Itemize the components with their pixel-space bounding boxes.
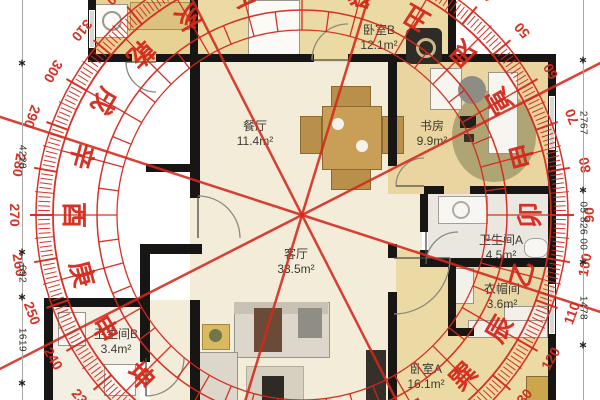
svg-text:250: 250	[21, 299, 44, 327]
wall-segment	[88, 54, 132, 62]
dimension-marker: ∗	[578, 339, 587, 352]
room-name: 餐厅	[237, 119, 273, 134]
wall-segment	[190, 0, 198, 62]
wall-segment	[424, 186, 444, 194]
room-name: 卫生间B	[94, 327, 138, 342]
dimension-marker: ∗	[578, 256, 587, 269]
toilet	[524, 238, 548, 258]
room-label-bedroom-a: 卧室A 16.1m²	[407, 362, 444, 392]
hall-floor	[150, 300, 190, 400]
wall-segment	[388, 292, 397, 400]
dimension-marker: ∗	[17, 57, 26, 70]
svg-text:290: 290	[21, 103, 44, 131]
kitchen-counter	[130, 2, 190, 30]
room-area: 16.1m²	[407, 377, 444, 392]
svg-text:庚: 庚	[64, 258, 100, 291]
dining-chair	[331, 168, 371, 190]
room-area: 3.6m²	[484, 297, 520, 312]
wall-segment	[448, 0, 456, 58]
cloak-shelf	[454, 268, 474, 304]
svg-text:50: 50	[511, 19, 533, 41]
wall-segment	[420, 194, 428, 232]
room-label-bath-b: 卫生间B 3.4m²	[94, 327, 138, 357]
wall-segment	[448, 328, 474, 336]
room-name: 卧室B	[360, 23, 397, 38]
sink-icon	[452, 201, 470, 219]
wall-segment	[470, 186, 556, 194]
bath-b-sink	[58, 312, 86, 346]
room-name: 客厅	[277, 247, 314, 262]
coffee-table	[262, 376, 284, 400]
window	[549, 284, 555, 334]
room-area: 3.4m²	[94, 342, 138, 357]
laptop-icon	[460, 116, 476, 128]
dimension-value: 2767	[578, 111, 589, 135]
svg-text:戌: 戌	[85, 82, 124, 120]
window	[89, 10, 95, 48]
sofa-throw	[254, 308, 282, 352]
dimension-value: 05 826 00	[578, 202, 589, 251]
dimension-value: 1478	[578, 296, 589, 320]
svg-text:270: 270	[7, 203, 23, 227]
room-area: 12.1m²	[360, 38, 397, 53]
washer-drum-icon	[102, 11, 122, 31]
tv-cabinet	[366, 350, 386, 400]
desk-chair	[458, 76, 486, 104]
speaker-cone-icon	[416, 38, 436, 58]
room-name: 卧室A	[407, 362, 444, 377]
plate-icon	[332, 118, 344, 130]
wall-segment	[388, 244, 397, 258]
svg-text:80: 80	[575, 156, 593, 174]
room-area: 9.9m²	[417, 134, 448, 149]
phone-icon	[464, 134, 474, 142]
room-area: 4.5m²	[479, 248, 523, 263]
plate-icon	[356, 140, 368, 152]
corridor-floor	[396, 194, 422, 258]
dimension-marker: ∗	[17, 377, 26, 390]
room-label-study: 书房 9.9m²	[417, 119, 448, 149]
dining-chair	[331, 86, 371, 108]
dimension-marker: ∗	[578, 184, 587, 197]
room-label-bath-a: 卫生间A 4.5m²	[479, 233, 523, 263]
wall-segment	[44, 298, 150, 307]
study-desk	[488, 72, 518, 154]
room-name: 衣帽间	[484, 282, 520, 297]
wall-segment	[190, 300, 200, 400]
window	[549, 96, 555, 150]
room-name: 书房	[417, 119, 448, 134]
wall-segment	[190, 62, 200, 198]
svg-text:40: 40	[475, 0, 497, 6]
room-label-bedroom-b: 卧室B 12.1m²	[360, 23, 397, 53]
room-label-dining: 餐厅 11.4m²	[237, 119, 273, 149]
svg-text:辛: 辛	[64, 140, 100, 173]
wall-segment	[190, 54, 314, 62]
wall-segment	[44, 298, 53, 400]
dimension-value: 692	[17, 265, 28, 283]
dimension-marker: ∗	[578, 54, 587, 67]
room-area: 33.5m²	[277, 262, 314, 277]
chaise	[196, 352, 238, 400]
cloak-wardrobe	[468, 320, 548, 338]
wall-segment	[140, 307, 150, 362]
room-label-cloak: 衣帽间 3.6m²	[484, 282, 520, 312]
room-name: 卫生间A	[479, 233, 523, 248]
wall-segment	[146, 164, 194, 172]
dimension-value: 4220	[17, 145, 28, 169]
dining-table	[322, 106, 382, 170]
wall-segment	[388, 62, 397, 166]
dimension-marker: ∗	[17, 291, 26, 304]
bedroom-b-bed	[248, 0, 300, 58]
dimension-marker: ∗	[17, 246, 26, 259]
floor-plan-with-luopan: 餐厅 11.4m² 客厅 33.5m² 卧室B 12.1m² 书房 9.9m² …	[0, 0, 600, 400]
room-area: 11.4m²	[237, 134, 273, 149]
dimension-value: 1619	[17, 328, 28, 352]
plant-icon	[209, 329, 222, 342]
svg-text:300: 300	[41, 57, 67, 85]
wall-segment	[448, 267, 456, 334]
sofa-cushion	[298, 308, 322, 338]
bath-b-toilet	[104, 364, 136, 396]
svg-text:酉: 酉	[59, 202, 89, 228]
room-label-living: 客厅 33.5m²	[277, 247, 314, 277]
dining-chair	[300, 116, 322, 154]
